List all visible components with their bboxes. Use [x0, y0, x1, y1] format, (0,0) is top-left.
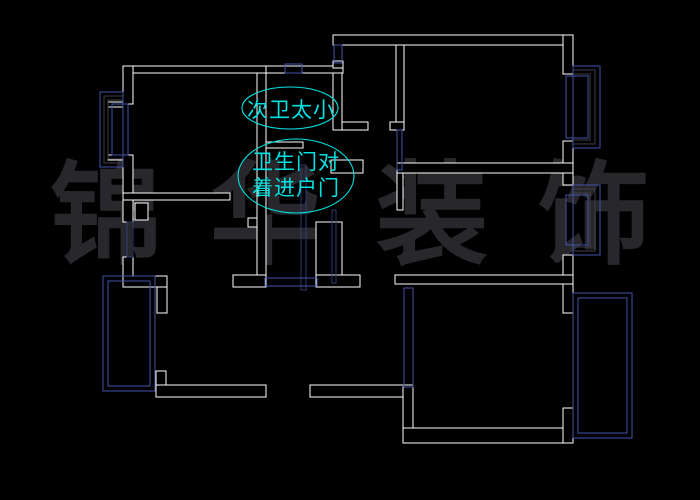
floorplan-drawing [0, 0, 700, 500]
wall-segment [563, 284, 573, 313]
wall-segment [123, 257, 133, 276]
wall-segment [342, 122, 368, 130]
wall-segment [563, 35, 573, 74]
window-frame-line [573, 189, 595, 251]
annotation-text-line: 次卫太小 [241, 97, 341, 123]
window-line [578, 298, 627, 433]
wall-segment [390, 122, 404, 130]
wall-segment [266, 142, 303, 148]
wall-segment [157, 287, 167, 313]
wall-segment [397, 173, 403, 210]
wall-segment [123, 193, 230, 200]
wall-segment [563, 408, 573, 443]
wall-segment [135, 203, 148, 220]
window-line [334, 45, 342, 63]
wall-segment [333, 35, 573, 45]
wall-segment [310, 385, 413, 397]
window-frame-line [108, 100, 123, 159]
window-line [566, 76, 588, 138]
wall-segment [123, 66, 266, 73]
wall-segment [266, 66, 343, 73]
wall-segment [156, 385, 266, 397]
wall-segment [316, 222, 342, 279]
annotation-secondary-bathroom: 次卫太小 [241, 97, 341, 123]
annotation-bathroom-door: 卫生门对 着进户门 [238, 149, 354, 201]
wall-segment [563, 255, 573, 275]
window-line [127, 222, 133, 257]
floorplan-canvas: 锦 华 装 饰 次卫太小 卫生门对 着进户门 [0, 0, 700, 500]
wall-segment [248, 218, 257, 227]
window-line [566, 195, 588, 245]
wall-segment [123, 66, 133, 104]
window-line [103, 276, 155, 391]
annotation-text-line: 着进户门 [238, 175, 354, 201]
window-line [404, 288, 413, 387]
wall-segment [316, 275, 360, 287]
wall-segment [396, 45, 404, 122]
wall-segment [397, 163, 573, 173]
window-line [573, 66, 600, 148]
annotation-text-line: 卫生门对 [238, 149, 354, 175]
window-line [265, 278, 317, 286]
wall-segment [156, 371, 166, 385]
window-frame-line [573, 70, 595, 144]
wall-segment [123, 200, 133, 222]
wall-segment [395, 275, 573, 284]
wall-segment [233, 275, 266, 287]
window-line [108, 281, 150, 386]
window-line [573, 293, 632, 438]
wall-segment [403, 428, 573, 443]
window-line [112, 104, 128, 155]
